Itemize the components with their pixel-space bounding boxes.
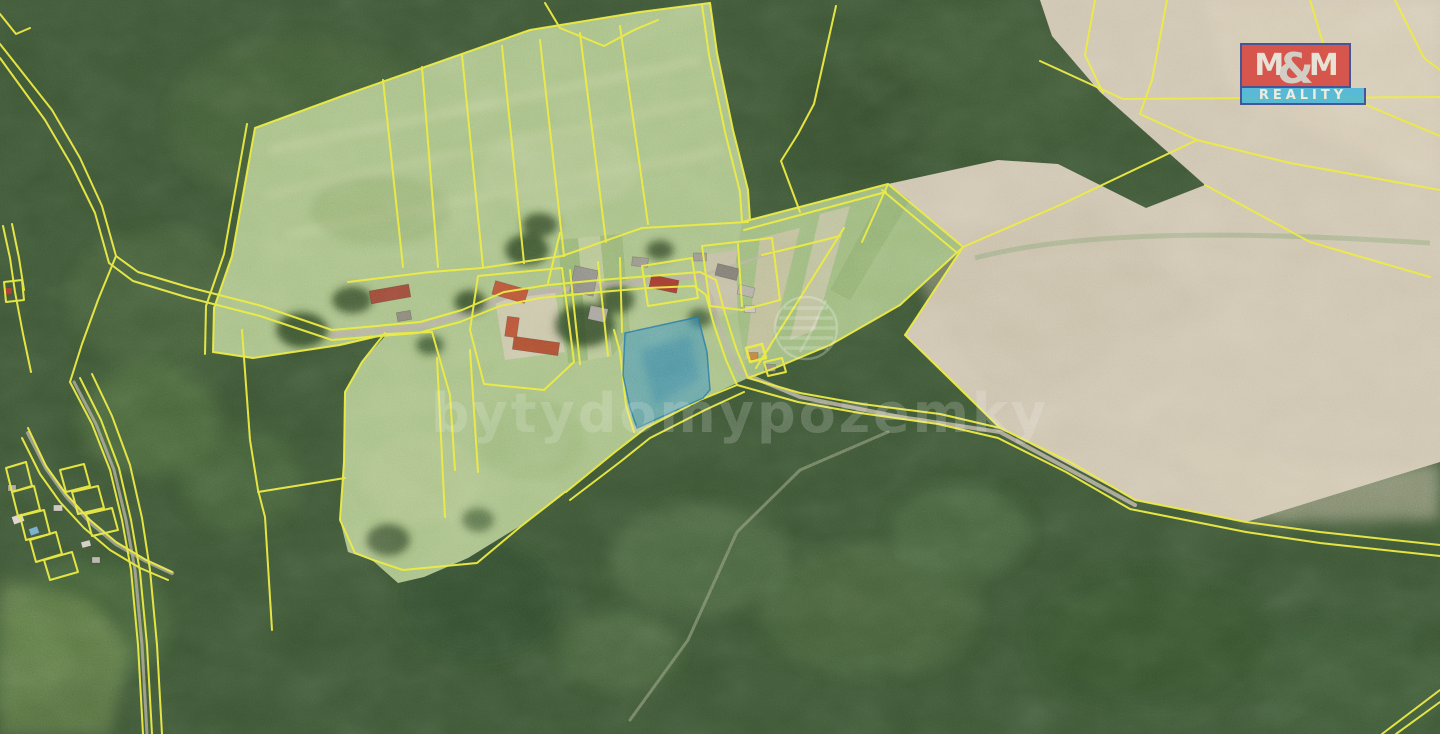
aerial-map: bytydomypozemky M & M REALITY <box>0 0 1440 734</box>
brand-logo: M & M REALITY <box>1240 43 1366 105</box>
brand-logo-mm: M & M <box>1240 43 1351 88</box>
texture-blotch <box>0 0 1440 734</box>
map-canvas: bytydomypozemky <box>0 0 1440 734</box>
brand-ampersand: & <box>1277 48 1314 90</box>
